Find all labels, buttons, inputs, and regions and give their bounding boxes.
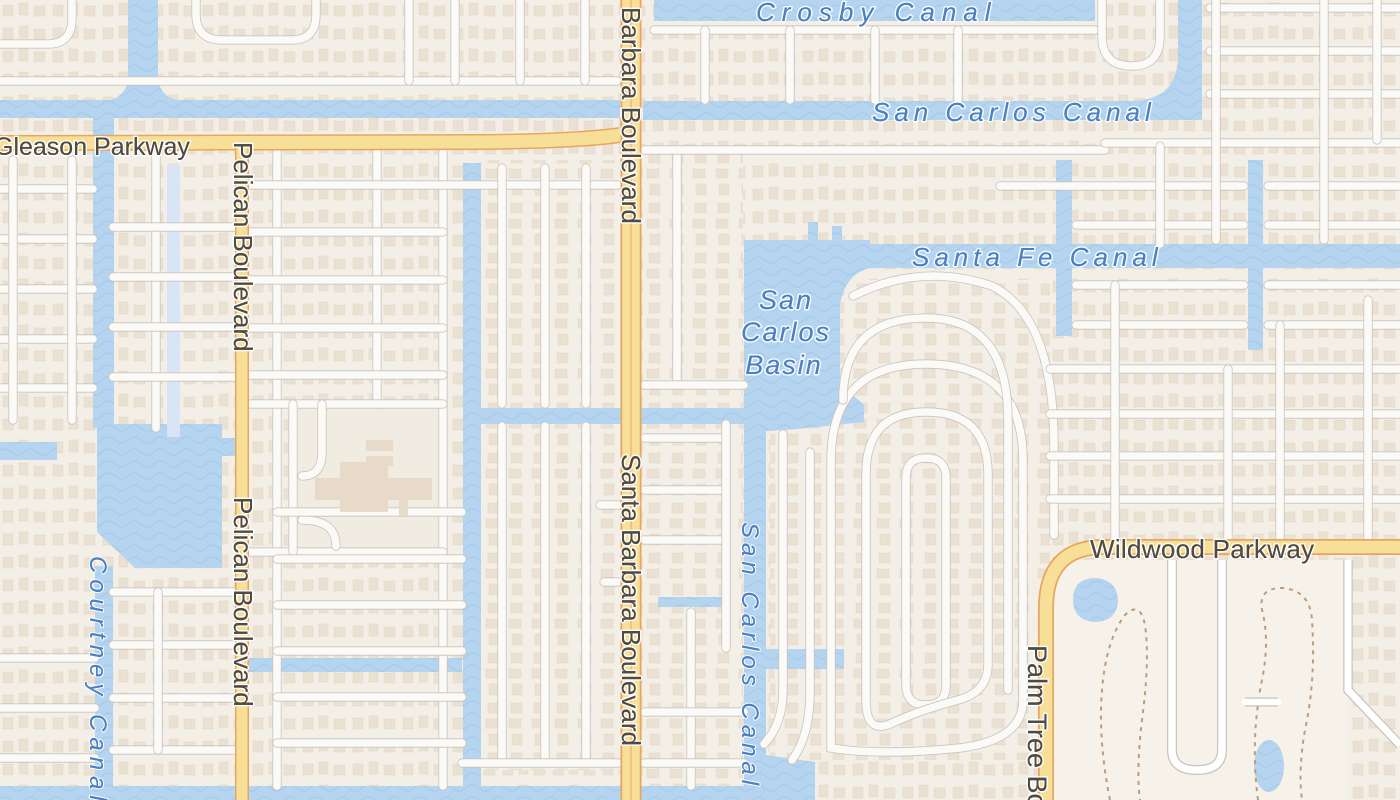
svg-text:Pelican Boulevard: Pelican Boulevard bbox=[228, 497, 258, 707]
svg-text:Gleason Parkway: Gleason Parkway bbox=[0, 133, 190, 161]
svg-text:San Carlos Canal: San Carlos Canal bbox=[736, 522, 763, 790]
svg-text:Santa Fe Canal: Santa Fe Canal bbox=[912, 242, 1163, 272]
svg-text:Carlos: Carlos bbox=[741, 317, 831, 347]
svg-text:Pelican Boulevard: Pelican Boulevard bbox=[228, 142, 258, 352]
svg-text:San: San bbox=[759, 285, 813, 315]
svg-text:Palm Tree Bou: Palm Tree Bou bbox=[1022, 645, 1052, 800]
svg-text:Santa Barbara Boulevard: Santa Barbara Boulevard bbox=[616, 454, 646, 746]
svg-text:Wildwood Parkway: Wildwood Parkway bbox=[1090, 534, 1314, 564]
svg-text:Basin: Basin bbox=[745, 350, 823, 380]
svg-text:Barbara Boulevard: Barbara Boulevard bbox=[616, 7, 646, 224]
svg-text:San Carlos Canal: San Carlos Canal bbox=[872, 97, 1156, 127]
svg-text:Courtney Canal: Courtney Canal bbox=[84, 556, 111, 800]
svg-text:Crosby Canal: Crosby Canal bbox=[756, 0, 998, 27]
